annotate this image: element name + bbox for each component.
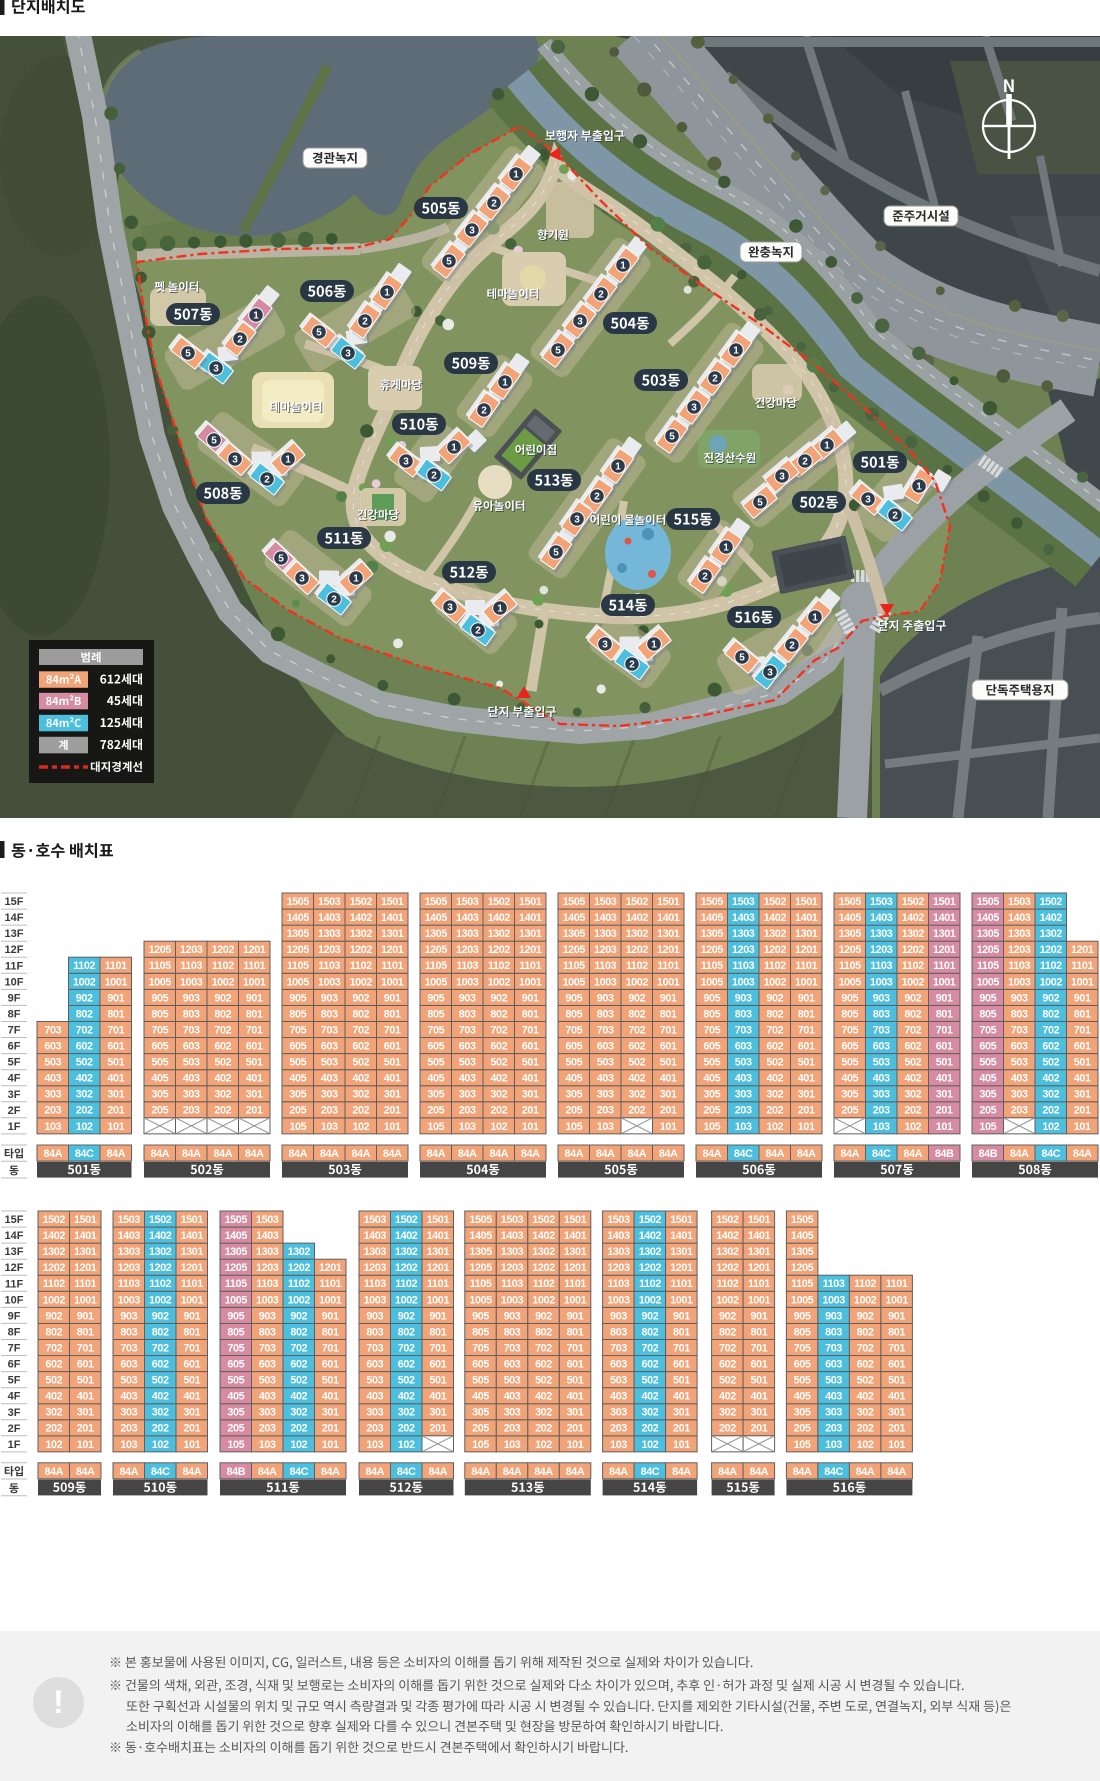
- svg-text:403: 403: [459, 1073, 476, 1085]
- svg-text:603: 603: [610, 1359, 627, 1371]
- svg-text:1503: 1503: [118, 1214, 141, 1226]
- svg-text:805: 805: [289, 1008, 306, 1020]
- svg-text:203: 203: [1011, 1105, 1028, 1117]
- svg-text:1005: 1005: [149, 976, 172, 988]
- svg-text:102: 102: [904, 1121, 921, 1133]
- svg-text:102: 102: [352, 1121, 369, 1133]
- svg-text:702: 702: [290, 1342, 307, 1354]
- svg-text:203: 203: [597, 1105, 614, 1117]
- svg-text:1402: 1402: [626, 912, 649, 924]
- svg-text:1402: 1402: [395, 1230, 418, 1242]
- svg-text:402: 402: [1042, 1073, 1059, 1085]
- svg-text:1405: 1405: [287, 912, 310, 924]
- svg-text:505: 505: [794, 1375, 811, 1387]
- svg-text:505: 505: [289, 1057, 306, 1069]
- svg-text:205: 205: [289, 1105, 306, 1117]
- svg-text:6F: 6F: [8, 1359, 21, 1371]
- svg-text:1202: 1202: [532, 1262, 555, 1274]
- svg-text:602: 602: [398, 1359, 415, 1371]
- svg-text:84A: 84A: [44, 1466, 63, 1478]
- svg-text:1203: 1203: [870, 944, 893, 956]
- svg-text:1203: 1203: [456, 944, 479, 956]
- svg-text:1301: 1301: [795, 928, 818, 940]
- svg-text:701: 701: [107, 1024, 124, 1036]
- svg-text:1102: 1102: [395, 1278, 417, 1290]
- svg-text:84A: 84A: [1073, 1148, 1092, 1160]
- svg-text:202: 202: [214, 1105, 231, 1117]
- svg-text:3: 3: [691, 402, 697, 413]
- svg-text:905: 905: [289, 992, 306, 1004]
- svg-text:3: 3: [602, 639, 608, 650]
- svg-text:302: 302: [490, 1089, 507, 1101]
- svg-text:601: 601: [660, 1041, 677, 1053]
- svg-text:301: 301: [936, 1089, 953, 1101]
- svg-text:802: 802: [214, 1008, 231, 1020]
- svg-text:903: 903: [504, 1310, 521, 1322]
- svg-text:!: !: [53, 1684, 64, 1720]
- svg-text:1002: 1002: [1040, 976, 1063, 988]
- svg-text:1502: 1502: [764, 896, 787, 908]
- svg-text:301: 301: [429, 1407, 446, 1419]
- svg-text:3: 3: [213, 363, 219, 374]
- svg-text:3: 3: [469, 225, 475, 236]
- svg-text:201: 201: [750, 1423, 767, 1435]
- svg-text:402: 402: [152, 1391, 169, 1403]
- svg-text:1403: 1403: [118, 1230, 141, 1242]
- svg-text:201: 201: [246, 1105, 263, 1117]
- svg-text:1402: 1402: [764, 912, 787, 924]
- svg-text:902: 902: [904, 992, 921, 1004]
- svg-text:802: 802: [398, 1326, 415, 1338]
- svg-text:1003: 1003: [1008, 976, 1031, 988]
- svg-text:1105: 1105: [977, 960, 999, 972]
- svg-text:1005: 1005: [425, 976, 448, 988]
- svg-text:201: 201: [936, 1105, 953, 1117]
- svg-text:1501: 1501: [74, 1214, 97, 1226]
- svg-text:401: 401: [660, 1073, 677, 1085]
- svg-text:902: 902: [490, 992, 507, 1004]
- svg-text:5: 5: [757, 497, 763, 508]
- svg-text:1302: 1302: [288, 1246, 311, 1258]
- svg-text:503: 503: [873, 1057, 890, 1069]
- svg-text:1101: 1101: [564, 1278, 586, 1290]
- svg-text:805: 805: [565, 1008, 582, 1020]
- svg-text:201: 201: [888, 1423, 905, 1435]
- svg-text:802: 802: [719, 1326, 736, 1338]
- svg-text:303: 303: [183, 1089, 200, 1101]
- svg-text:203: 203: [366, 1423, 383, 1435]
- svg-text:803: 803: [504, 1326, 521, 1338]
- svg-text:302: 302: [628, 1089, 645, 1101]
- svg-text:1401: 1401: [748, 1230, 771, 1242]
- svg-text:1003: 1003: [364, 1294, 387, 1306]
- svg-text:3: 3: [403, 456, 409, 467]
- svg-text:905: 905: [472, 1310, 489, 1322]
- svg-text:801: 801: [750, 1326, 767, 1338]
- svg-text:84A: 84A: [765, 1148, 784, 1160]
- svg-text:101: 101: [522, 1121, 539, 1133]
- svg-text:802: 802: [45, 1326, 62, 1338]
- svg-text:1501: 1501: [657, 896, 680, 908]
- svg-text:5F: 5F: [8, 1375, 21, 1387]
- svg-text:1401: 1401: [74, 1230, 97, 1242]
- svg-text:901: 901: [77, 1310, 94, 1322]
- svg-text:102: 102: [398, 1439, 415, 1451]
- svg-text:305: 305: [703, 1089, 720, 1101]
- svg-text:302: 302: [290, 1407, 307, 1419]
- svg-text:105: 105: [472, 1439, 489, 1451]
- svg-text:84A: 84A: [383, 1148, 402, 1160]
- svg-text:303: 303: [825, 1407, 842, 1419]
- svg-text:2: 2: [237, 334, 243, 345]
- svg-text:1503: 1503: [318, 896, 341, 908]
- svg-text:1405: 1405: [977, 912, 1000, 924]
- svg-text:1105: 1105: [425, 960, 447, 972]
- svg-text:902: 902: [719, 1310, 736, 1322]
- svg-text:401: 401: [183, 1391, 200, 1403]
- svg-text:502: 502: [490, 1057, 507, 1069]
- svg-text:503: 503: [366, 1375, 383, 1387]
- svg-text:1203: 1203: [732, 944, 755, 956]
- svg-text:1201: 1201: [748, 1262, 771, 1274]
- svg-text:1003: 1003: [870, 976, 893, 988]
- svg-text:302: 302: [352, 1089, 369, 1101]
- svg-text:1202: 1202: [1040, 944, 1063, 956]
- svg-text:1505: 1505: [791, 1214, 814, 1226]
- svg-text:201: 201: [77, 1423, 94, 1435]
- svg-text:1003: 1003: [118, 1294, 141, 1306]
- svg-text:602: 602: [535, 1359, 552, 1371]
- svg-text:305: 305: [979, 1089, 996, 1101]
- svg-text:1005: 1005: [791, 1294, 814, 1306]
- svg-text:502: 502: [535, 1375, 552, 1387]
- svg-text:505: 505: [979, 1057, 996, 1069]
- svg-text:1005: 1005: [225, 1294, 248, 1306]
- svg-text:605: 605: [794, 1359, 811, 1371]
- svg-text:1002: 1002: [73, 976, 96, 988]
- svg-text:3: 3: [345, 348, 351, 359]
- svg-text:503: 503: [825, 1375, 842, 1387]
- svg-text:1F: 1F: [8, 1121, 21, 1133]
- svg-text:902: 902: [76, 992, 93, 1004]
- svg-text:302: 302: [1042, 1089, 1059, 1101]
- svg-text:1303: 1303: [364, 1246, 387, 1258]
- svg-text:401: 401: [750, 1391, 767, 1403]
- svg-text:202: 202: [398, 1423, 415, 1435]
- svg-text:1305: 1305: [287, 928, 310, 940]
- svg-text:301: 301: [673, 1407, 690, 1419]
- svg-text:1105: 1105: [287, 960, 309, 972]
- svg-text:303: 303: [610, 1407, 627, 1419]
- svg-text:1401: 1401: [564, 1230, 587, 1242]
- svg-text:701: 701: [750, 1342, 767, 1354]
- svg-text:1202: 1202: [639, 1262, 662, 1274]
- svg-text:502: 502: [904, 1057, 921, 1069]
- svg-text:302: 302: [535, 1407, 552, 1419]
- svg-text:1003: 1003: [456, 976, 479, 988]
- svg-text:901: 901: [567, 1310, 584, 1322]
- svg-text:903: 903: [825, 1310, 842, 1322]
- svg-text:84A: 84A: [106, 1148, 125, 1160]
- svg-text:405: 405: [794, 1391, 811, 1403]
- svg-text:501: 501: [429, 1375, 446, 1387]
- svg-text:801: 801: [888, 1326, 905, 1338]
- svg-text:103: 103: [825, 1439, 842, 1451]
- svg-text:903: 903: [120, 1310, 137, 1322]
- svg-text:2: 2: [702, 571, 708, 582]
- svg-text:203: 203: [610, 1423, 627, 1435]
- svg-text:1102: 1102: [1040, 960, 1062, 972]
- svg-text:1301: 1301: [381, 928, 404, 940]
- svg-text:202: 202: [857, 1423, 874, 1435]
- svg-text:405: 405: [227, 1391, 244, 1403]
- svg-text:305: 305: [427, 1089, 444, 1101]
- svg-text:603: 603: [44, 1041, 61, 1053]
- svg-text:603: 603: [366, 1359, 383, 1371]
- svg-text:901: 901: [888, 1310, 905, 1322]
- svg-text:1201: 1201: [657, 944, 680, 956]
- svg-text:801: 801: [384, 1008, 401, 1020]
- svg-text:303: 303: [44, 1089, 61, 1101]
- svg-text:1302: 1302: [149, 1246, 172, 1258]
- svg-text:1401: 1401: [933, 912, 956, 924]
- svg-text:601: 601: [384, 1041, 401, 1053]
- svg-text:1001: 1001: [519, 976, 542, 988]
- svg-text:84A: 84A: [503, 1466, 522, 1478]
- svg-text:7F: 7F: [8, 1343, 21, 1355]
- svg-text:401: 401: [429, 1391, 446, 1403]
- svg-text:84A: 84A: [566, 1466, 585, 1478]
- svg-text:1202: 1202: [395, 1262, 418, 1274]
- svg-text:903: 903: [459, 992, 476, 1004]
- svg-text:701: 701: [660, 1024, 677, 1036]
- svg-text:84A: 84A: [321, 1466, 340, 1478]
- svg-text:202: 202: [719, 1423, 736, 1435]
- svg-text:703: 703: [610, 1342, 627, 1354]
- svg-text:9F: 9F: [8, 992, 21, 1004]
- svg-text:84C: 84C: [75, 1148, 94, 1160]
- svg-text:903: 903: [366, 1310, 383, 1322]
- svg-text:601: 601: [183, 1359, 200, 1371]
- svg-text:402: 402: [290, 1391, 307, 1403]
- svg-text:401: 401: [384, 1073, 401, 1085]
- svg-text:1103: 1103: [501, 1278, 523, 1290]
- svg-text:803: 803: [1011, 1008, 1028, 1020]
- svg-text:102: 102: [641, 1439, 658, 1451]
- svg-text:3: 3: [865, 494, 871, 505]
- svg-text:9F: 9F: [8, 1310, 21, 1322]
- svg-text:102: 102: [76, 1121, 93, 1133]
- svg-text:405: 405: [703, 1073, 720, 1085]
- svg-text:1305: 1305: [469, 1246, 492, 1258]
- svg-text:703: 703: [321, 1024, 338, 1036]
- svg-text:1105: 1105: [701, 960, 723, 972]
- svg-text:702: 702: [719, 1342, 736, 1354]
- svg-text:601: 601: [246, 1041, 263, 1053]
- svg-text:402: 402: [76, 1073, 93, 1085]
- svg-text:802: 802: [152, 1326, 169, 1338]
- svg-text:601: 601: [936, 1041, 953, 1053]
- svg-text:401: 401: [1074, 1073, 1091, 1085]
- svg-text:1103: 1103: [823, 1278, 845, 1290]
- svg-text:401: 401: [246, 1073, 263, 1085]
- svg-text:803: 803: [735, 1008, 752, 1020]
- svg-text:601: 601: [567, 1359, 584, 1371]
- svg-text:1205: 1205: [791, 1262, 814, 1274]
- svg-text:402: 402: [535, 1391, 552, 1403]
- svg-text:103: 103: [504, 1439, 521, 1451]
- svg-text:14F: 14F: [5, 912, 24, 924]
- svg-text:1402: 1402: [532, 1230, 555, 1242]
- svg-text:205: 205: [565, 1105, 582, 1117]
- svg-text:1003: 1003: [607, 1294, 630, 1306]
- svg-text:905: 905: [841, 992, 858, 1004]
- svg-text:302: 302: [719, 1407, 736, 1419]
- svg-text:802: 802: [535, 1326, 552, 1338]
- svg-text:502: 502: [214, 1057, 231, 1069]
- svg-text:12F: 12F: [5, 944, 24, 956]
- svg-text:1301: 1301: [427, 1246, 450, 1258]
- svg-text:15F: 15F: [5, 896, 24, 908]
- svg-text:101: 101: [107, 1121, 124, 1133]
- svg-text:1502: 1502: [43, 1214, 66, 1226]
- svg-text:402: 402: [719, 1391, 736, 1403]
- svg-text:605: 605: [565, 1041, 582, 1053]
- svg-text:603: 603: [735, 1041, 752, 1053]
- svg-text:101: 101: [384, 1121, 401, 1133]
- svg-text:801: 801: [660, 1008, 677, 1020]
- svg-text:702: 702: [766, 1024, 783, 1036]
- svg-text:1202: 1202: [212, 944, 235, 956]
- svg-text:1102: 1102: [43, 1278, 65, 1290]
- svg-text:505: 505: [565, 1057, 582, 1069]
- svg-text:1103: 1103: [256, 1278, 278, 1290]
- svg-text:84A: 84A: [258, 1466, 277, 1478]
- svg-text:1302: 1302: [350, 928, 373, 940]
- svg-text:1403: 1403: [364, 1230, 387, 1242]
- svg-text:84A: 84A: [365, 1466, 384, 1478]
- svg-text:602: 602: [766, 1041, 783, 1053]
- svg-text:1503: 1503: [607, 1214, 630, 1226]
- svg-text:301: 301: [888, 1407, 905, 1419]
- svg-text:1: 1: [451, 442, 457, 453]
- svg-text:2: 2: [264, 474, 270, 485]
- svg-text:203: 203: [459, 1105, 476, 1117]
- svg-text:202: 202: [152, 1423, 169, 1435]
- svg-text:603: 603: [321, 1041, 338, 1053]
- svg-text:1102: 1102: [626, 960, 648, 972]
- svg-text:1305: 1305: [977, 928, 1000, 940]
- svg-text:503: 503: [610, 1375, 627, 1387]
- svg-text:702: 702: [1042, 1024, 1059, 1036]
- svg-text:801: 801: [77, 1326, 94, 1338]
- svg-text:303: 303: [873, 1089, 890, 1101]
- svg-text:1003: 1003: [318, 976, 341, 988]
- svg-text:503: 503: [597, 1057, 614, 1069]
- svg-text:302: 302: [45, 1407, 62, 1419]
- svg-text:901: 901: [660, 992, 677, 1004]
- svg-text:1302: 1302: [488, 928, 511, 940]
- svg-text:84A: 84A: [672, 1466, 691, 1478]
- svg-text:1001: 1001: [105, 976, 128, 988]
- svg-text:84A: 84A: [428, 1466, 447, 1478]
- svg-text:1002: 1002: [350, 976, 373, 988]
- svg-text:1205: 1205: [225, 1262, 248, 1274]
- svg-text:202: 202: [535, 1423, 552, 1435]
- svg-text:502: 502: [398, 1375, 415, 1387]
- svg-text:1403: 1403: [501, 1230, 524, 1242]
- svg-text:10F: 10F: [5, 1294, 24, 1306]
- svg-text:1: 1: [916, 481, 922, 492]
- svg-text:605: 605: [979, 1041, 996, 1053]
- svg-text:1003: 1003: [822, 1294, 845, 1306]
- svg-text:2: 2: [712, 373, 718, 384]
- svg-text:205: 205: [427, 1105, 444, 1117]
- svg-text:1203: 1203: [318, 944, 341, 956]
- svg-text:1002: 1002: [488, 976, 511, 988]
- svg-text:802: 802: [766, 1008, 783, 1020]
- svg-text:603: 603: [459, 1041, 476, 1053]
- svg-text:1003: 1003: [256, 1294, 279, 1306]
- svg-text:2: 2: [594, 491, 600, 502]
- svg-text:1102: 1102: [149, 1278, 171, 1290]
- svg-text:84A: 84A: [150, 1148, 169, 1160]
- svg-text:603: 603: [259, 1359, 276, 1371]
- svg-text:1102: 1102: [764, 960, 786, 972]
- svg-text:3: 3: [447, 602, 453, 613]
- svg-text:1402: 1402: [488, 912, 511, 924]
- svg-text:1403: 1403: [456, 912, 479, 924]
- svg-text:205: 205: [151, 1105, 168, 1117]
- svg-text:301: 301: [660, 1089, 677, 1101]
- svg-text:1302: 1302: [764, 928, 787, 940]
- svg-text:402: 402: [628, 1073, 645, 1085]
- svg-text:1101: 1101: [105, 960, 127, 972]
- svg-text:1201: 1201: [1071, 944, 1094, 956]
- svg-text:203: 203: [259, 1423, 276, 1435]
- svg-text:1505: 1505: [977, 896, 1000, 908]
- svg-text:1301: 1301: [748, 1246, 771, 1258]
- svg-text:14F: 14F: [5, 1230, 24, 1242]
- svg-text:702: 702: [45, 1342, 62, 1354]
- svg-text:1F: 1F: [8, 1439, 21, 1451]
- svg-text:805: 805: [703, 1008, 720, 1020]
- svg-text:1102: 1102: [350, 960, 372, 972]
- svg-text:601: 601: [1074, 1041, 1091, 1053]
- svg-text:501: 501: [798, 1057, 815, 1069]
- svg-text:1101: 1101: [670, 1278, 692, 1290]
- svg-text:84C: 84C: [151, 1466, 170, 1478]
- svg-text:1405: 1405: [701, 912, 724, 924]
- svg-text:1: 1: [620, 260, 626, 271]
- svg-text:5: 5: [278, 553, 284, 564]
- svg-text:103: 103: [597, 1121, 614, 1133]
- svg-text:205: 205: [841, 1105, 858, 1117]
- svg-text:601: 601: [77, 1359, 94, 1371]
- svg-text:602: 602: [76, 1041, 93, 1053]
- svg-text:1002: 1002: [626, 976, 649, 988]
- svg-text:701: 701: [246, 1024, 263, 1036]
- svg-text:302: 302: [152, 1407, 169, 1419]
- svg-text:801: 801: [522, 1008, 539, 1020]
- svg-text:805: 805: [227, 1326, 244, 1338]
- svg-text:1405: 1405: [791, 1230, 814, 1242]
- svg-text:1302: 1302: [43, 1246, 66, 1258]
- svg-text:1002: 1002: [639, 1294, 662, 1306]
- svg-text:905: 905: [794, 1310, 811, 1322]
- svg-text:1301: 1301: [657, 928, 680, 940]
- svg-text:405: 405: [289, 1073, 306, 1085]
